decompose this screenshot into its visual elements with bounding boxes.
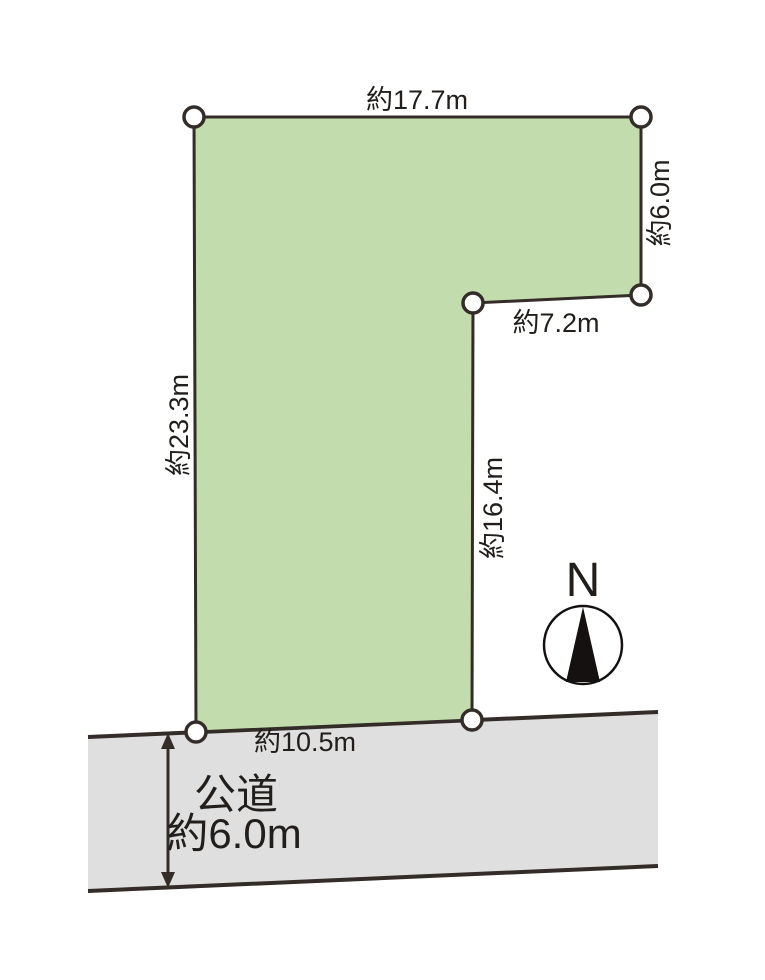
- vertex-marker-bottom-right: [462, 710, 482, 730]
- road: [88, 712, 658, 891]
- vertex-marker-bottom-left: [186, 722, 206, 742]
- road-area: [88, 712, 658, 891]
- vertex-marker-top-left: [184, 107, 204, 127]
- vertex-marker-top-right: [631, 107, 651, 127]
- vertex-marker-inner-notch: [463, 293, 483, 313]
- dimension-label-notch: 約7.2m: [512, 308, 599, 338]
- north-compass: N: [544, 554, 622, 684]
- dimension-label-frontage: 約10.5m: [254, 727, 356, 757]
- dimension-label-top: 約17.7m: [366, 85, 468, 115]
- site-plan-diagram: 約17.7m 約6.0m 約7.2m 約16.4m 約23.3m 約10.5m …: [0, 0, 765, 980]
- road-width-label: 約6.0m: [166, 810, 301, 857]
- vertex-marker-right-notch: [631, 285, 651, 305]
- dimension-label-inner-right: 約16.4m: [478, 457, 508, 559]
- dimension-label-left: 約23.3m: [164, 374, 194, 476]
- north-label: N: [566, 554, 601, 607]
- dimension-label-upper-right: 約6.0m: [645, 159, 675, 246]
- site-plan-canvas: 約17.7m 約6.0m 約7.2m 約16.4m 約23.3m 約10.5m …: [0, 0, 765, 980]
